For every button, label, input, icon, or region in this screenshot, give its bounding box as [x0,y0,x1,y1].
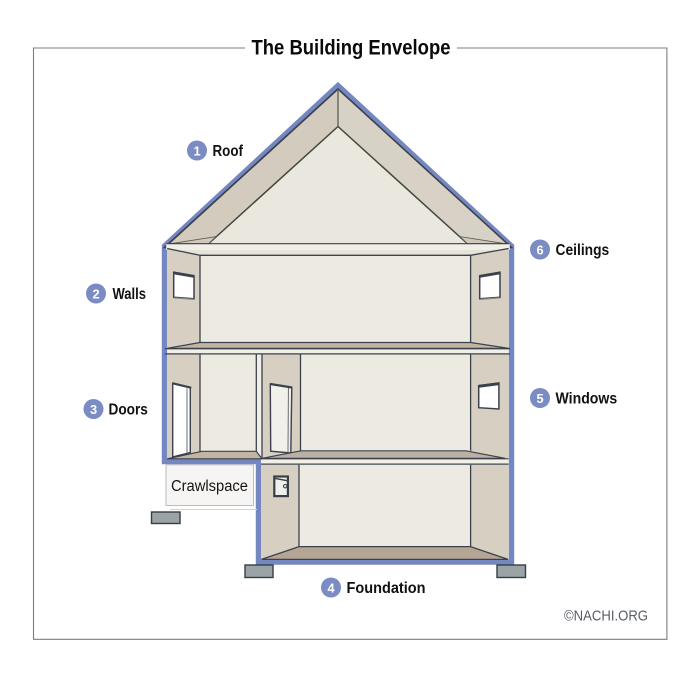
svg-text:3: 3 [90,402,97,417]
svg-text:Foundation: Foundation [347,580,426,597]
svg-text:Windows: Windows [556,390,618,407]
svg-text:4: 4 [327,581,335,596]
svg-text:Roof: Roof [213,143,244,160]
svg-text:2: 2 [92,287,99,302]
svg-text:Walls: Walls [113,286,147,303]
svg-text:©NACHI.ORG: ©NACHI.ORG [564,608,648,625]
svg-text:6: 6 [536,243,543,258]
svg-text:5: 5 [536,391,543,406]
svg-text:Doors: Doors [109,401,148,418]
svg-text:Crawlspace: Crawlspace [171,478,248,495]
svg-text:Ceilings: Ceilings [556,242,610,259]
svg-text:The Building Envelope: The Building Envelope [252,37,451,60]
svg-text:1: 1 [193,144,200,159]
